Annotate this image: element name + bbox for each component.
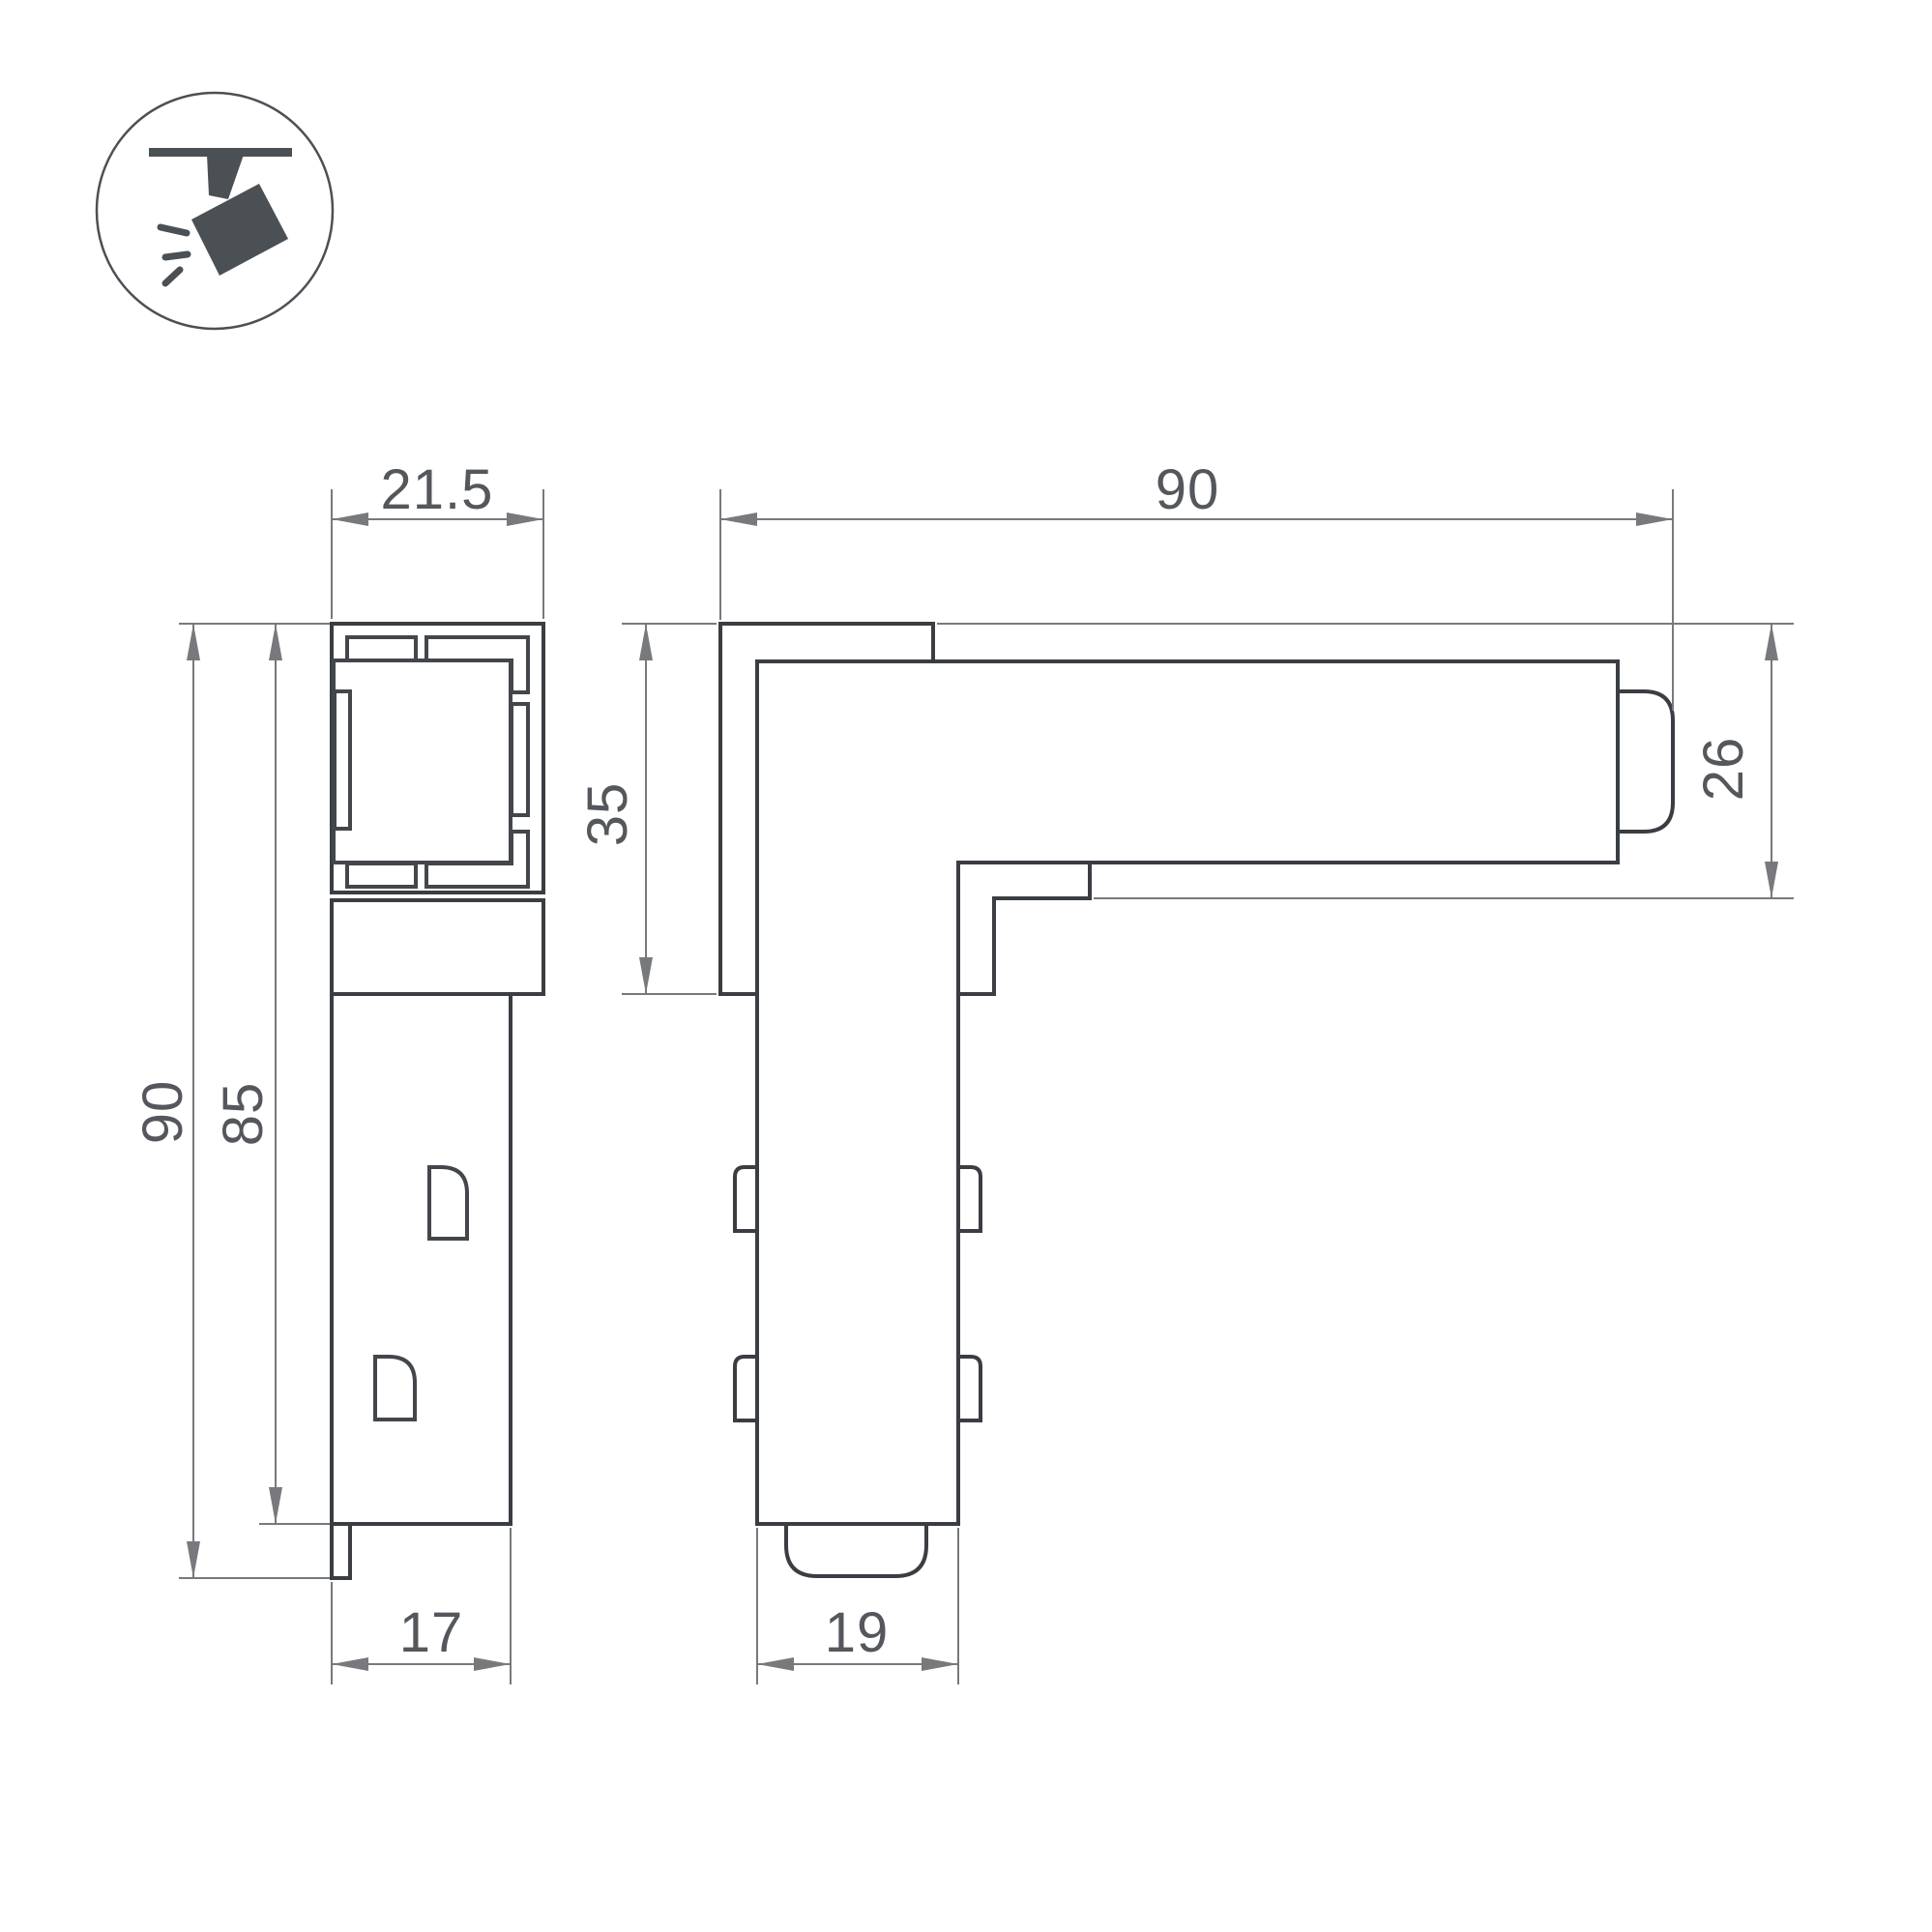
dim-label-body-height: 85 (212, 1082, 275, 1147)
icon-light-rays (161, 227, 188, 283)
side-latch-left-upper (735, 1167, 757, 1231)
latch-window-upper (429, 1167, 467, 1239)
connector-body (332, 994, 511, 1524)
connector-head (332, 900, 543, 994)
dim-label-track-width: 21.5 (381, 458, 494, 521)
track-slot-bottom-left (347, 864, 416, 887)
latch-window-lower (375, 1357, 415, 1420)
track-slot-left (335, 691, 350, 829)
track-slot-top-left (347, 637, 416, 660)
bottom-tab (332, 1524, 350, 1578)
icon-lamp-head (191, 184, 288, 276)
track-cavity (334, 660, 511, 863)
end-plug-right (1618, 691, 1673, 832)
side-view-outline (720, 624, 1673, 1576)
connector-l-body (757, 661, 1618, 1524)
icon-stem (207, 155, 244, 199)
side-latch-right-upper (958, 1167, 981, 1231)
side-latch-right-lower (958, 1357, 981, 1420)
side-view (720, 624, 1673, 1576)
end-plug-bottom (786, 1524, 926, 1576)
track-spotlight-icon (97, 93, 333, 329)
dim-label-overall-height: 90 (132, 1080, 194, 1145)
drawing-page: 21.5 90 85 17 90 35 26 19 (0, 0, 1932, 1932)
track-slot-right (512, 704, 528, 815)
side-latch-left-lower (735, 1357, 757, 1420)
technical-drawing: 21.5 90 85 17 90 35 26 19 (0, 0, 1932, 1932)
front-view (332, 624, 543, 1578)
dim-label-track-height: 26 (1692, 737, 1755, 802)
dim-label-corner-height: 35 (576, 782, 639, 847)
dim-label-body-width: 17 (399, 1601, 464, 1664)
dim-label-arm-width: 19 (825, 1601, 890, 1664)
dim-label-overall-length: 90 (1156, 458, 1220, 521)
